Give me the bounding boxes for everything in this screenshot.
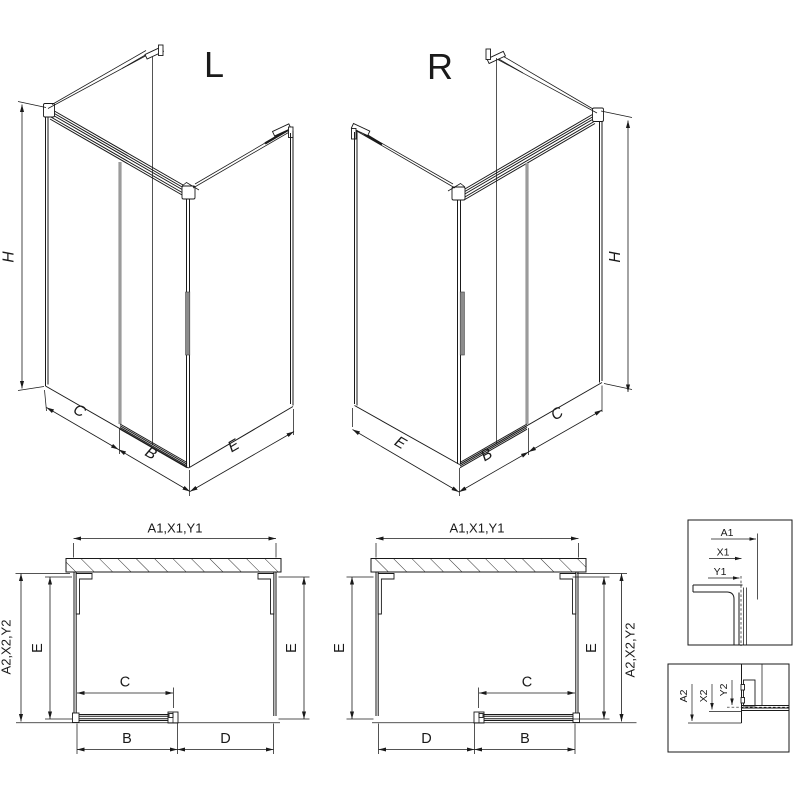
technical-drawing-canvas: L bbox=[0, 0, 800, 800]
corner-connector bbox=[452, 187, 465, 200]
dim-label-depth-left-plan: A2,X2,Y2 bbox=[0, 620, 14, 675]
dim-label-depth-right-plan: A2,X2,Y2 bbox=[623, 623, 638, 678]
dim-label-C-plan: C bbox=[522, 675, 532, 691]
dim-label-D-plan: D bbox=[220, 731, 230, 747]
dim-label-X1-detail: X1 bbox=[717, 547, 730, 559]
wall-anchor-foot bbox=[159, 45, 164, 56]
dim-label-E-left: E bbox=[225, 436, 243, 456]
plan-view-left: A1,X1,Y1 A2,X2,Y2 E E C B D bbox=[0, 521, 310, 755]
iso-view-right: R bbox=[351, 46, 632, 496]
detail-view-wall-profile: A1 X1 Y1 bbox=[688, 520, 792, 646]
dim-label-B-left: B bbox=[142, 444, 159, 464]
rail-end-block bbox=[573, 713, 580, 723]
rail-end-cap bbox=[593, 108, 604, 122]
drawing-sheet: L bbox=[0, 0, 800, 800]
dim-label-B-plan: B bbox=[122, 731, 132, 747]
door-handle bbox=[460, 292, 464, 355]
dim-label-Y2-detail: Y2 bbox=[718, 683, 730, 696]
iso-right-dimensions: H E B C bbox=[353, 111, 633, 496]
dim-label-width-right-plan: A1,X1,Y1 bbox=[450, 521, 505, 536]
dim-label-E-left-plan: E bbox=[332, 643, 348, 653]
dim-label-B-right: B bbox=[478, 445, 495, 465]
wall-profile-bracket bbox=[560, 574, 576, 615]
dim-label-E-left-plan: E bbox=[30, 643, 46, 653]
roller-detail bbox=[169, 714, 173, 718]
dim-label-Y1-detail: Y1 bbox=[714, 566, 727, 578]
dim-label-D-plan: D bbox=[421, 731, 431, 747]
dim-label-E-right-plan: E bbox=[284, 643, 300, 653]
detail-view-threshold-profile: A2 X2 Y2 bbox=[668, 664, 789, 752]
dim-label-C-plan: C bbox=[120, 675, 130, 691]
dim-label-C-left: C bbox=[70, 401, 89, 422]
plan-view-right: A1,X1,Y1 E E A2,X2,Y2 C D B bbox=[332, 521, 638, 755]
dim-label-X2-detail: X2 bbox=[698, 689, 710, 702]
wall-anchor-foot bbox=[486, 49, 491, 60]
iso-right-structure bbox=[351, 49, 603, 468]
dim-label-B-plan: B bbox=[520, 731, 530, 747]
profile-notch bbox=[741, 685, 745, 691]
dim-label-H-right: H bbox=[607, 251, 624, 263]
door-profile-section bbox=[744, 680, 756, 706]
profile-notch bbox=[741, 698, 745, 704]
dim-label-width-left-plan: A1,X1,Y1 bbox=[148, 521, 203, 536]
dim-label-C-right: C bbox=[548, 404, 567, 425]
wall-section-hatched bbox=[66, 559, 281, 573]
plan-left-structure bbox=[16, 572, 280, 723]
iso-view-left: L bbox=[1, 44, 295, 496]
wall-profile-bracket bbox=[76, 574, 92, 615]
wall-section-hatched bbox=[371, 559, 586, 573]
dim-label-E-right-plan: E bbox=[584, 643, 600, 653]
door-handle bbox=[186, 292, 190, 355]
wall-anchor-foot bbox=[352, 129, 357, 140]
wall-profile-bracket bbox=[378, 574, 394, 615]
variant-letter-right: R bbox=[427, 46, 453, 87]
iso-left-dimensions: H C B E bbox=[1, 102, 295, 497]
wall-profile-bracket bbox=[258, 574, 274, 615]
dim-label-H-left: H bbox=[1, 251, 18, 263]
variant-letter-left: L bbox=[204, 44, 224, 85]
dim-label-A2-detail: A2 bbox=[678, 689, 690, 702]
roller-detail bbox=[479, 714, 483, 718]
rail-end-block bbox=[73, 713, 80, 723]
dim-label-A1-detail: A1 bbox=[721, 527, 734, 539]
dim-label-E-right: E bbox=[392, 433, 410, 453]
